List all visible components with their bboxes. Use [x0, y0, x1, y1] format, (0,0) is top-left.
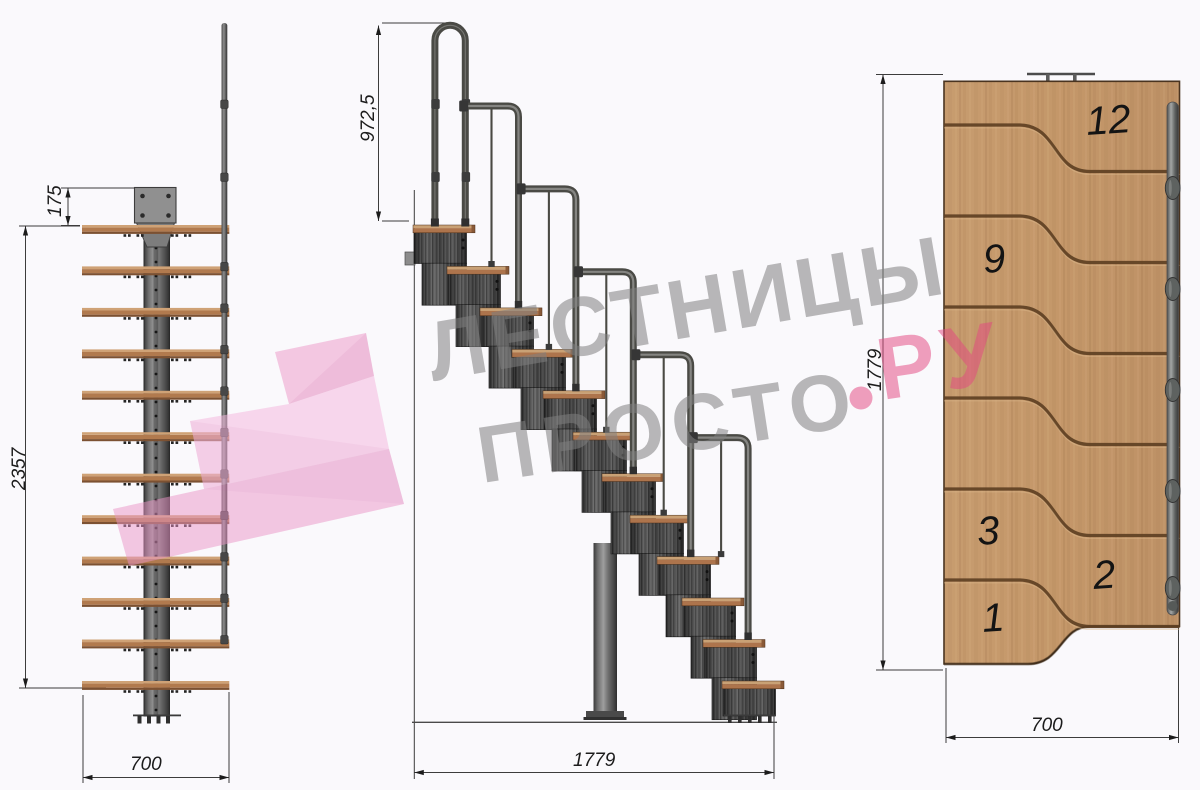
- svg-text:1: 1: [981, 596, 1006, 641]
- svg-text:175: 175: [45, 185, 66, 217]
- svg-text:700: 700: [1031, 715, 1063, 736]
- svg-text:700: 700: [130, 754, 162, 775]
- svg-text:12: 12: [1085, 97, 1132, 144]
- svg-text:972,5: 972,5: [358, 94, 379, 142]
- svg-text:9: 9: [982, 237, 1007, 282]
- svg-text:1779: 1779: [573, 750, 616, 771]
- svg-text:2357: 2357: [9, 446, 30, 491]
- svg-text:2: 2: [1091, 553, 1117, 599]
- svg-text:3: 3: [976, 509, 1001, 554]
- svg-text:РУ: РУ: [870, 302, 1012, 419]
